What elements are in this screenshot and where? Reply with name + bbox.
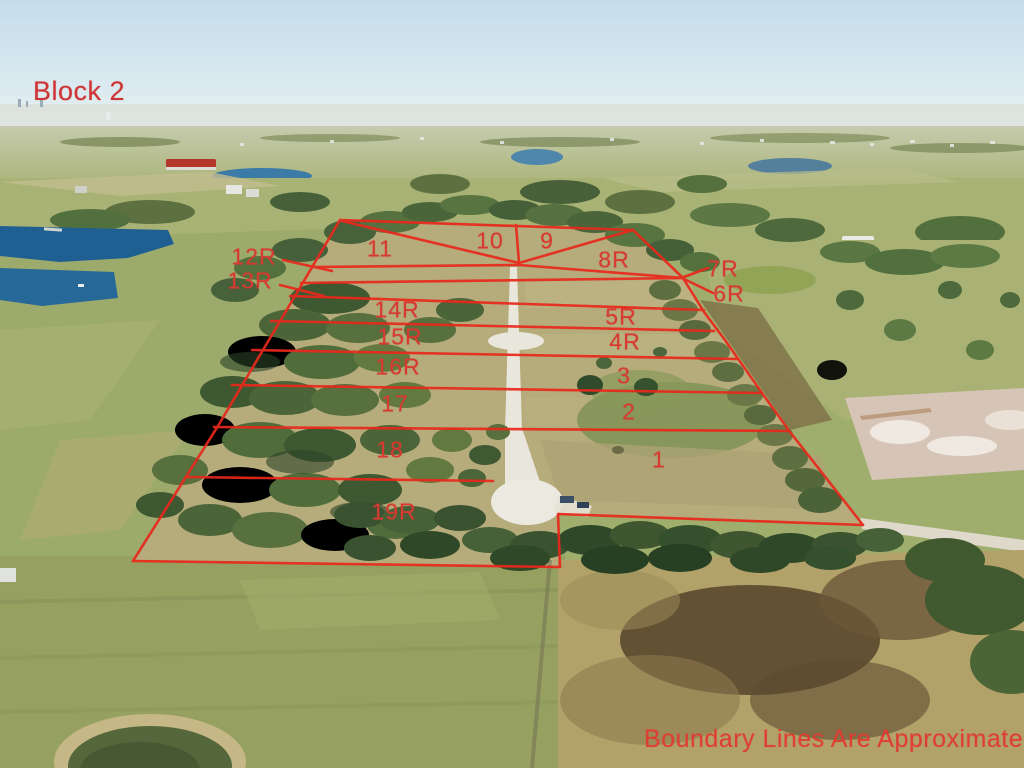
lot-label-12R: 12R xyxy=(231,246,276,269)
aerial-lot-photo: Block 2 11 10 9 8R 12R 13R 7R 6R 14R 5R … xyxy=(0,0,1024,768)
lot-label-7R: 7R xyxy=(707,258,738,281)
lot-label-8R: 8R xyxy=(598,249,629,272)
lot-label-18: 18 xyxy=(376,439,404,462)
lot-label-3: 3 xyxy=(617,365,631,388)
lot-label-15R: 15R xyxy=(377,326,422,349)
lot-label-14R: 14R xyxy=(374,299,419,322)
lot-label-19R: 19R xyxy=(371,501,416,524)
photo-scene xyxy=(0,0,1024,768)
lot-label-16R: 16R xyxy=(375,356,420,379)
lot-label-2: 2 xyxy=(622,401,636,424)
lot-label-1: 1 xyxy=(652,449,666,472)
lot-label-17: 17 xyxy=(381,393,409,416)
lot-label-13R: 13R xyxy=(227,270,272,293)
lot-label-6R: 6R xyxy=(713,283,744,306)
lot-label-11: 11 xyxy=(367,238,393,261)
lot-label-5R: 5R xyxy=(605,306,636,329)
lot-label-4R: 4R xyxy=(609,331,640,354)
lot-label-10: 10 xyxy=(476,230,504,253)
sky xyxy=(0,0,1024,132)
lot-label-9: 9 xyxy=(540,230,554,253)
